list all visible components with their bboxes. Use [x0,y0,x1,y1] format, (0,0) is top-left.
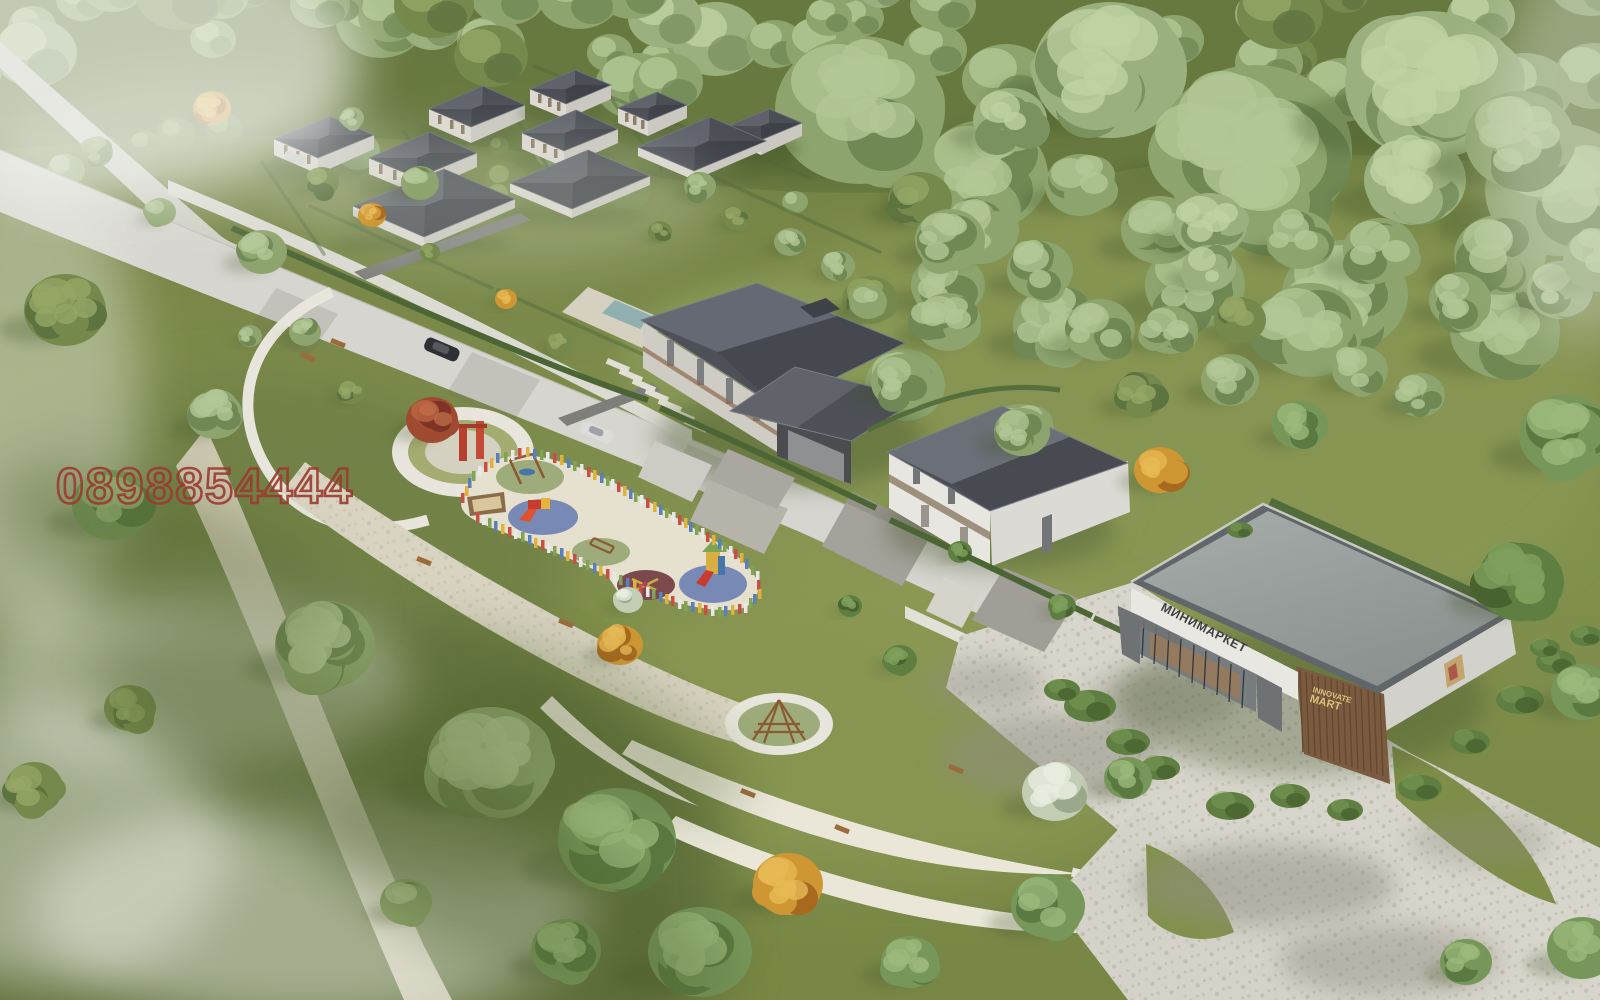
svg-text:0898854444: 0898854444 [56,458,354,514]
